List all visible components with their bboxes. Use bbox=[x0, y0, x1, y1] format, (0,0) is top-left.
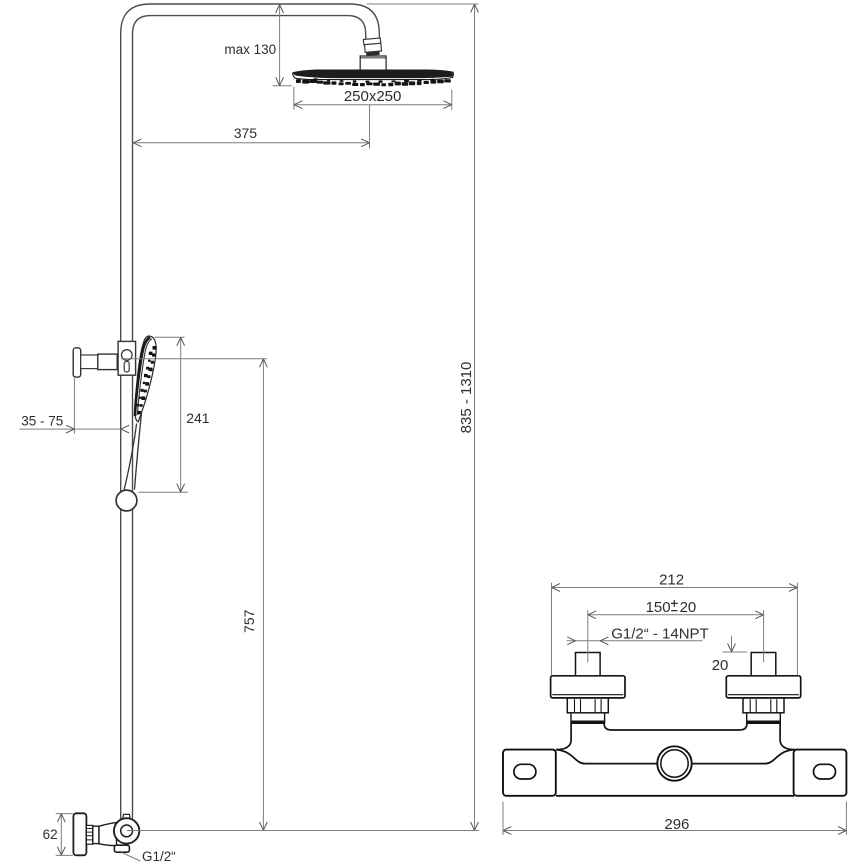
svg-text:20: 20 bbox=[712, 657, 729, 674]
svg-text:250x250: 250x250 bbox=[344, 88, 402, 105]
svg-text:757: 757 bbox=[241, 609, 257, 633]
svg-text:241: 241 bbox=[186, 410, 210, 426]
svg-text:835 - 1310: 835 - 1310 bbox=[458, 362, 475, 434]
svg-text:G1/2“ - 14NPT: G1/2“ - 14NPT bbox=[611, 625, 709, 642]
svg-text:212: 212 bbox=[659, 571, 684, 588]
svg-text:375: 375 bbox=[234, 125, 258, 141]
svg-text:150: 150 bbox=[646, 599, 671, 616]
svg-text:G1/2“: G1/2“ bbox=[142, 849, 176, 864]
svg-text:35 - 75: 35 - 75 bbox=[21, 413, 63, 428]
svg-text:max 130: max 130 bbox=[224, 42, 276, 57]
svg-text:20: 20 bbox=[680, 599, 697, 616]
svg-text:62: 62 bbox=[43, 827, 58, 842]
svg-text:296: 296 bbox=[664, 816, 689, 833]
